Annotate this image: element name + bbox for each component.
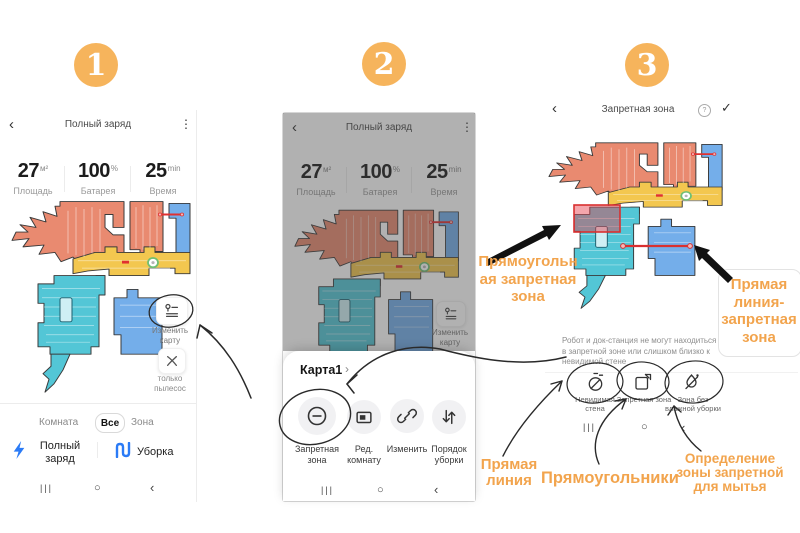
restriction-info-text: Робот и док-станция не могут находиться …: [562, 336, 716, 368]
stat-battery-unit: %: [111, 164, 118, 173]
no-mop-zone-label: Зона без влажной уборки: [664, 395, 722, 413]
annotation-rect-zone-line3: зона: [478, 288, 578, 306]
edit-room-button[interactable]: [347, 400, 381, 434]
edit-room-label: Ред. комнату: [340, 444, 388, 465]
stat-time: 25min Время: [133, 160, 193, 196]
no-mop-zone-label-line1: Зона без: [664, 395, 722, 404]
tab-all-selected[interactable]: Все: [95, 413, 125, 433]
no-mop-icon: [682, 372, 702, 392]
page-title: Полный заряд: [48, 119, 148, 130]
vacuum-only-button[interactable]: [158, 348, 186, 374]
invisible-wall-label-line2: стена: [570, 404, 620, 413]
annotation-line-zone: Прямая линия- запретная зона: [720, 276, 798, 346]
restricted-zone-label-line1: Запретная: [289, 444, 345, 455]
stat-divider: [130, 166, 131, 192]
zone-rectangle-icon: [633, 372, 653, 392]
merge-maps-label: Изменить: [383, 444, 431, 455]
nav-recents-icon[interactable]: |||: [583, 422, 596, 432]
nav-recents-icon[interactable]: |||: [321, 485, 334, 495]
annotation-straight-line: Прямая линия: [478, 457, 540, 489]
no-mop-zone-label-line2: влажной уборки: [664, 404, 722, 413]
stat-time-label: Время: [133, 186, 193, 196]
edit-map-label: Изменить карту: [142, 326, 198, 345]
annotation-rect-zone: Прямоугольн ая запретная зона: [478, 253, 578, 306]
annotation-no-mop-line3: для мытья: [674, 480, 786, 494]
nav-home-icon[interactable]: ○: [641, 421, 648, 433]
cleaning-order-button[interactable]: [432, 400, 466, 434]
stat-divider: [64, 166, 65, 192]
nav-back-icon[interactable]: ‹: [150, 480, 154, 495]
restriction-info-line3: невидимой стене: [562, 357, 716, 368]
vacuum-only-label: только пылесос: [142, 374, 198, 393]
annotation-rectangles: Прямоугольники: [541, 469, 679, 488]
page-title: Запретная зона: [583, 104, 693, 115]
full-charge-button[interactable]: [12, 441, 25, 459]
stat-battery-value: 100: [78, 160, 110, 182]
restriction-info-line1: Робот и док-станция не могут находиться: [562, 336, 716, 347]
bottom-sheet: Карта1 ›: [283, 351, 475, 501]
stat-time-unit: min: [168, 164, 181, 173]
nav-back-icon[interactable]: ‹: [434, 482, 438, 497]
tab-zone[interactable]: Зона: [131, 417, 154, 428]
restriction-info-line2: в запретной зоне или слишком близко к: [562, 347, 716, 358]
restricted-zone-label: Запретная зона: [289, 444, 345, 465]
full-charge-line1: Полный: [36, 440, 84, 453]
step-number-3: 3: [637, 48, 658, 83]
restricted-zone-tool[interactable]: [633, 372, 653, 392]
annotation-no-mop-line2: зоны запретной: [674, 466, 786, 480]
annotation-rect-zone-line1: Прямоугольн: [478, 253, 578, 271]
edit-map-icon: [162, 302, 182, 320]
merge-maps-label-line1: Изменить: [383, 444, 431, 455]
edit-map-button[interactable]: [156, 297, 188, 325]
restricted-zone-label-line2: зона: [289, 455, 345, 466]
nav-recents-icon[interactable]: |||: [40, 483, 53, 493]
invisible-wall-label-line1: Невидимая: [570, 395, 620, 404]
chevron-right-icon[interactable]: ›: [345, 362, 349, 376]
nav-home-icon[interactable]: ○: [377, 484, 384, 496]
dim-overlay: [283, 113, 475, 351]
annotation-rect-zone-line2: ая запретная: [478, 271, 578, 289]
tab-room[interactable]: Комната: [39, 417, 78, 428]
annotation-line-zone-line1: Прямая: [720, 276, 798, 294]
step-badge-2: 2: [362, 42, 406, 86]
minus-circle-icon: [305, 404, 329, 428]
step-badge-1: 1: [74, 43, 118, 87]
annotation-straight-line-line2: линия: [478, 473, 540, 489]
help-icon[interactable]: ?: [698, 104, 711, 117]
edit-room-icon: [353, 406, 375, 428]
link-icon: [396, 405, 418, 427]
stat-battery-label: Батарея: [68, 186, 128, 196]
cleaning-order-label: Порядок уборки: [425, 444, 473, 465]
annotation-line-zone-line3: запретная: [720, 311, 798, 329]
vacuum-only-label-line2: пылесос: [142, 384, 198, 394]
back-icon[interactable]: ‹: [9, 116, 14, 133]
edit-map-label-line1: Изменить: [142, 326, 198, 336]
invisible-wall-label: Невидимая стена: [570, 395, 620, 413]
sort-arrows-icon: [438, 406, 460, 428]
merge-maps-button[interactable]: [390, 399, 424, 433]
annotation-line-zone-line4: зона: [720, 329, 798, 347]
annotation-straight-line-line1: Прямая: [478, 457, 540, 473]
step-badge-3: 3: [625, 43, 669, 87]
clean-button[interactable]: [115, 442, 131, 458]
edit-map-label-line2: карту: [142, 336, 198, 346]
cleaning-order-label-line2: уборки: [425, 455, 473, 466]
section-divider: [0, 403, 196, 404]
hand-arrow-to-edit-map: [197, 325, 251, 398]
edit-room-label-line1: Ред.: [340, 444, 388, 455]
cleaning-order-label-line1: Порядок: [425, 444, 473, 455]
invisible-wall-tool[interactable]: [585, 372, 605, 392]
invisible-wall-icon: [585, 372, 605, 392]
action-divider: [97, 442, 98, 458]
clean-route-icon: [115, 442, 131, 458]
confirm-check-icon[interactable]: ✓: [721, 100, 732, 116]
back-icon[interactable]: ‹: [552, 100, 557, 117]
fan-icon: [164, 353, 180, 369]
annotation-no-mop-zone: Определение зоны запретной для мытья: [674, 452, 786, 494]
map-name[interactable]: Карта1: [300, 363, 342, 377]
vacuum-only-label-line1: только: [142, 374, 198, 384]
toolbar-divider: [545, 372, 798, 373]
lightning-icon: [12, 441, 25, 459]
stat-area-value: 27: [18, 160, 39, 182]
no-mop-zone-tool[interactable]: [682, 372, 702, 392]
full-charge-line2: заряд: [36, 453, 84, 466]
full-charge-label[interactable]: Полный заряд: [36, 440, 84, 466]
tutorial-canvas: 1 2 3 ‹ Полный заряд ⋮ 27м² Площадь 100%…: [0, 0, 800, 533]
more-menu-icon[interactable]: ⋮: [180, 117, 192, 131]
stat-area-unit: м²: [40, 164, 48, 173]
phone1-screen: ‹ Полный заряд ⋮ 27м² Площадь 100% Батар…: [0, 110, 197, 502]
restricted-zone-button[interactable]: [298, 397, 336, 435]
phone2-screen: ‹ Полный заряд ⋮ 27м² Площадь 100% Батар…: [282, 112, 476, 502]
nav-back-icon[interactable]: ‹: [681, 420, 685, 435]
edit-room-label-line2: комнату: [340, 455, 388, 466]
stat-area: 27м² Площадь: [3, 160, 63, 196]
nav-home-icon[interactable]: ○: [94, 482, 101, 494]
annotation-line-zone-line2: линия-: [720, 294, 798, 312]
clean-label[interactable]: Уборка: [137, 446, 173, 459]
tab-all-label: Все: [101, 418, 119, 429]
annotation-no-mop-line1: Определение: [674, 452, 786, 466]
step-number-1: 1: [86, 48, 107, 83]
stat-battery: 100% Батарея: [68, 160, 128, 196]
step-number-2: 2: [374, 47, 395, 82]
stat-area-label: Площадь: [3, 186, 63, 196]
stat-time-value: 25: [145, 160, 166, 182]
